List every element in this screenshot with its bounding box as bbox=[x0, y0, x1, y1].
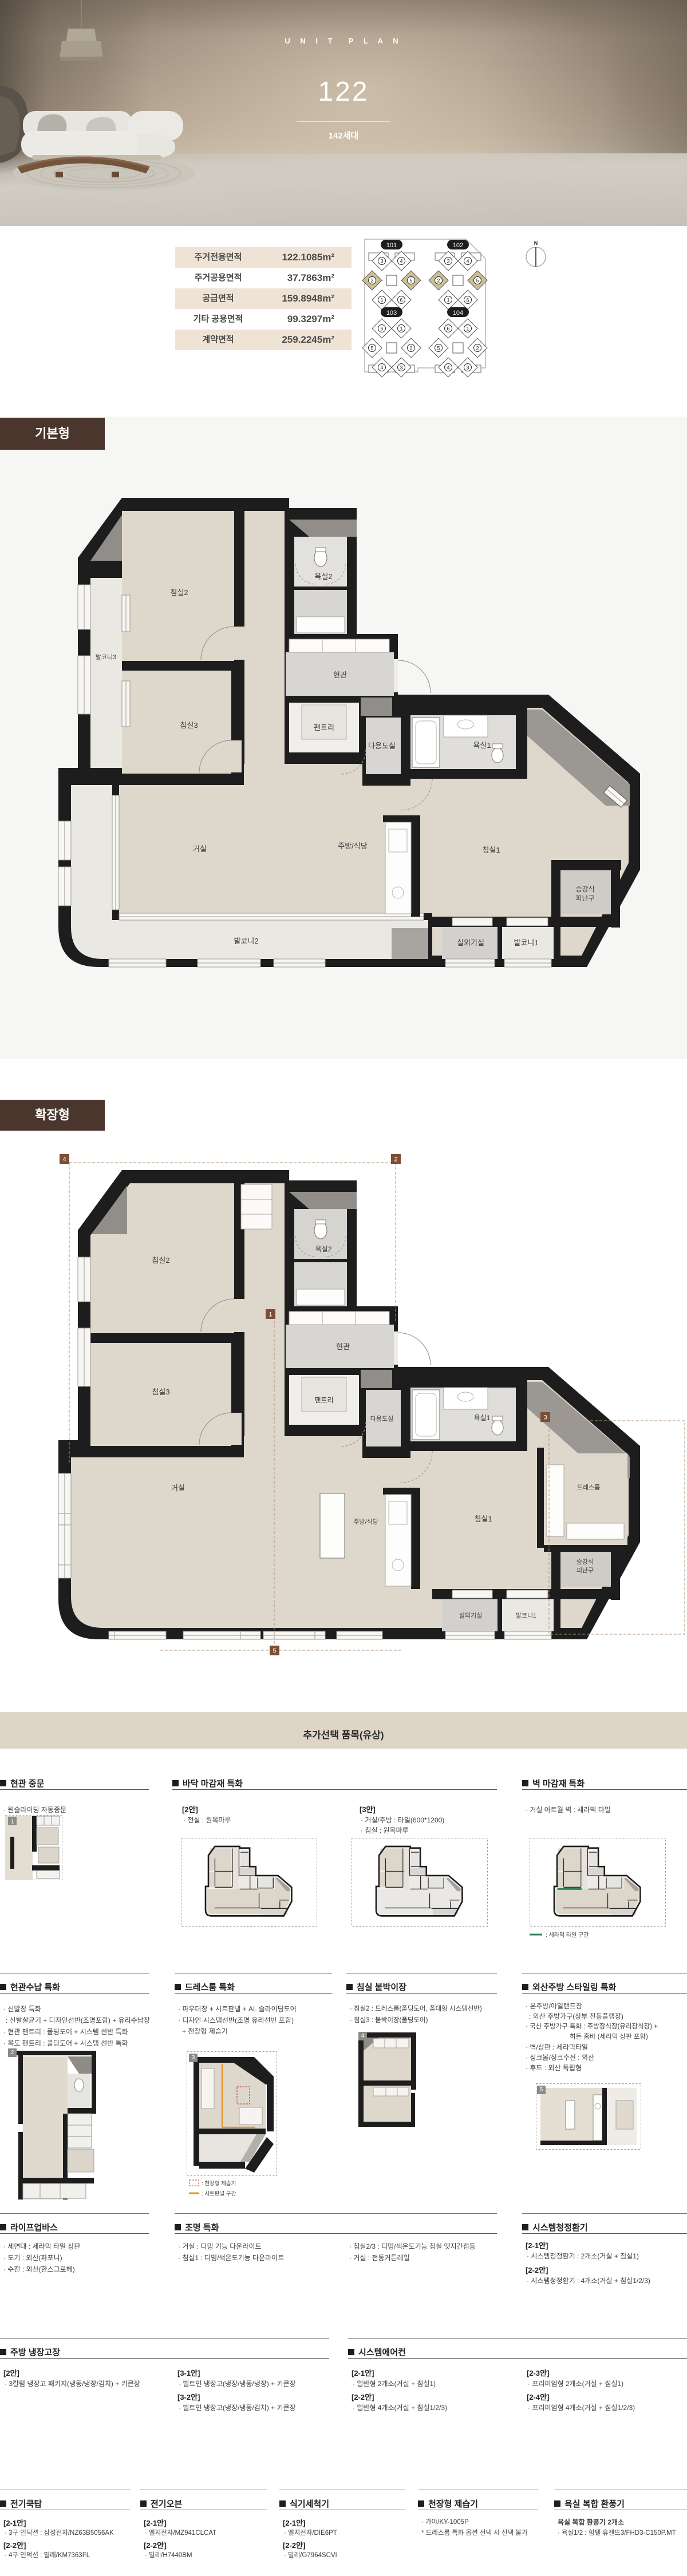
svg-text:드레스륨: 드레스륨 bbox=[577, 1484, 600, 1491]
svg-text:5: 5 bbox=[273, 1648, 276, 1655]
svg-text:: 시트판널 구간: : 시트판널 구간 bbox=[202, 2191, 236, 2197]
svg-text:욕실1: 욕실1 bbox=[474, 1414, 491, 1422]
svg-text:: 천장형 제습기: : 천장형 제습기 bbox=[202, 2181, 236, 2187]
svg-text:승강식: 승강식 bbox=[577, 1558, 594, 1566]
svg-text:3: 3 bbox=[543, 1414, 547, 1421]
svg-text:1: 1 bbox=[269, 1311, 272, 1318]
svg-text:침실2: 침실2 bbox=[152, 1256, 169, 1265]
svg-text:현관: 현관 bbox=[336, 1342, 350, 1351]
svg-text:: 세라믹 타일 구간: : 세라믹 타일 구간 bbox=[546, 1932, 589, 1939]
svg-text:발코니1: 발코니1 bbox=[516, 1612, 536, 1619]
svg-text:팬트리: 팬트리 bbox=[314, 1396, 333, 1404]
svg-text:다용도실: 다용도실 bbox=[370, 1415, 393, 1422]
svg-text:침실1: 침실1 bbox=[474, 1515, 492, 1523]
svg-text:1: 1 bbox=[11, 1819, 14, 1825]
svg-text:주방/식당: 주방/식당 bbox=[353, 1518, 378, 1525]
svg-text:거실: 거실 bbox=[171, 1484, 185, 1492]
svg-text:2: 2 bbox=[394, 1156, 397, 1163]
svg-text:실외기실: 실외기실 bbox=[459, 1612, 482, 1619]
svg-text:욕실2: 욕실2 bbox=[315, 1245, 332, 1253]
svg-text:침실3: 침실3 bbox=[152, 1388, 169, 1396]
svg-text:4: 4 bbox=[62, 1156, 66, 1163]
svg-text:피난구: 피난구 bbox=[577, 1567, 594, 1574]
